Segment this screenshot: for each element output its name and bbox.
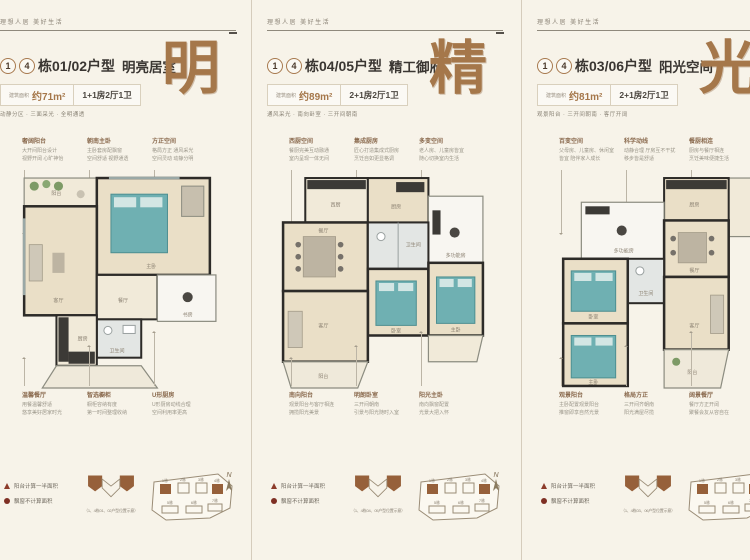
- keyplan-caption: （1、4栋04、05户型位置示意）: [345, 508, 411, 514]
- callout-bottom-3: U形厨房 U形厨房动线合理 空间利用率更高: [152, 390, 214, 417]
- callout-line: 空间舒适 视野通透: [87, 155, 149, 163]
- callout-line: U形厨房动线合理: [152, 401, 214, 409]
- leader-line: [89, 346, 90, 386]
- room-label: 卧室: [588, 313, 598, 320]
- legend-text: 飘窗不计算面积: [14, 497, 53, 505]
- chair-icon: [450, 227, 460, 237]
- legend: 阳台计算一半面积 飘窗不计算面积: [541, 482, 595, 512]
- callout-title: 阳光主卧: [419, 390, 481, 399]
- legend-row: 阳台计算一半面积 飘窗不计算面积 （1、4栋01、02户型位置示意）: [0, 468, 244, 543]
- callout-title: 奢阔阳台: [22, 136, 84, 145]
- unit-number-badge: 4: [556, 58, 572, 74]
- slogan-text: 理想人居 美好生活: [0, 17, 63, 26]
- layout-box: 2+1房2厅1卫: [341, 84, 407, 106]
- plant-icon: [42, 180, 50, 188]
- callout-bottom-1: 温馨餐厅 用餐温馨舒适 悠享美好居家时光: [22, 390, 84, 417]
- callout-line: 主卧套房配飘窗: [87, 147, 149, 155]
- callout-top-1: 西厨空间 餐厨完美互动融通 室内呈现一体无间: [289, 136, 351, 163]
- building-label: 6栋: [728, 499, 734, 505]
- toilet-icon: [636, 267, 644, 275]
- layout-box: 2+1房2厅1卫: [611, 84, 677, 106]
- callout-title: 智选橱柜: [87, 390, 149, 399]
- keyplan-caption: （1、4栋03、06户型位置示意）: [615, 508, 681, 514]
- layout-value: 1+1房2厅1卫: [82, 89, 131, 101]
- area-box: 建筑面积 约89m²: [267, 84, 341, 106]
- chair-icon: [295, 242, 301, 248]
- legend: 阳台计算一半面积 飘窗不计算面积: [271, 482, 325, 512]
- floor-plan-svg-2: 西厨 厨房 多功能房 餐厅 卫生间 客厅 卧室 主卧 阳台: [277, 174, 489, 391]
- rule-dash: [229, 32, 237, 34]
- toilet-icon: [377, 233, 385, 241]
- legend-text: 飘窗不计算面积: [551, 497, 590, 505]
- chair-icon: [338, 266, 344, 272]
- features-line: 通风采光 · 南向卧室 · 三开间朝南: [267, 110, 358, 118]
- callout-title: 集成厨房: [354, 136, 416, 145]
- legend-row: 阳台计算一半面积 飘窗不计算面积 （1、4栋04、05户型位置示意）: [259, 468, 511, 543]
- unit-number-badge: 4: [286, 58, 302, 74]
- callout-line: 空间利用率更高: [152, 409, 214, 417]
- room-label: 客厅: [318, 322, 328, 329]
- big-calligraphy-char: 明: [162, 40, 222, 98]
- compass-arrow-icon: [224, 479, 234, 493]
- building-1: [160, 484, 171, 494]
- callout-bottom-1: 南向阳台 观景阳台与客厅相连 拥揽阳光美景: [289, 390, 351, 417]
- pillow: [595, 338, 612, 346]
- room-label: 主卧: [146, 263, 156, 270]
- unit-number-badge: 1: [267, 58, 283, 74]
- chair-icon: [338, 242, 344, 248]
- callout-bottom-2: 智选橱柜 橱柜容纳有度 第一时间整理收纳: [87, 390, 149, 417]
- bay-window: [428, 335, 483, 361]
- leader-line: [421, 332, 422, 386]
- balcony: [664, 350, 729, 388]
- flyer-panel-2: 理想人居 美好生活 1 4 栋04/05户型 精工御府 精 建筑面积 约89m²…: [259, 0, 511, 560]
- leader-line: [561, 358, 562, 386]
- legend-balcony: 阳台计算一半面积: [4, 482, 58, 490]
- callout-title: 明朗卧室: [354, 390, 416, 399]
- pillow: [398, 283, 413, 291]
- plant-icon: [672, 358, 680, 366]
- features-line: 观景阳台 · 三开间朝南 · 客厅开阔: [537, 110, 628, 118]
- callout-line: 餐厨完美互动融通: [289, 147, 351, 155]
- building-label: 1栋: [699, 477, 705, 483]
- slogan-text: 理想人居 美好生活: [537, 17, 600, 26]
- building-outline: [102, 479, 120, 497]
- room-label: 主卧: [588, 379, 598, 386]
- callout-line: 烹饪美味便捷生活: [689, 155, 750, 163]
- building-label: 5栋: [434, 499, 440, 505]
- rule-dash: [496, 32, 504, 34]
- keyplan: （1、4栋04、05户型位置示意）: [345, 472, 411, 514]
- room-label: 厨房: [391, 203, 401, 210]
- callout-line: 烹饪自如更显格调: [354, 155, 416, 163]
- room-label: 客厅: [53, 297, 63, 304]
- callout-line: 随心切换室内生活: [419, 155, 481, 163]
- sofa: [711, 295, 724, 333]
- callout-top-3: 方正空间 格局方正 通风采光 空间灵动 动静分明: [152, 136, 214, 163]
- callout-title: 格局方正: [624, 390, 686, 399]
- sofa: [288, 311, 302, 347]
- counter: [666, 180, 727, 189]
- area-label: 建筑面积: [546, 92, 566, 99]
- highlighted-unit: [120, 476, 134, 492]
- chair-icon: [295, 266, 301, 272]
- callout-top-2: 科学动线 动静合理 厅房互不干扰 移步皆是舒适: [624, 136, 686, 163]
- callout-title: 科学动线: [624, 136, 686, 145]
- sink-icon: [123, 325, 135, 333]
- info-row: 建筑面积 约81m² 2+1房2厅1卫: [537, 84, 678, 106]
- plan-area: 西厨空间 餐厨完美互动融通 室内呈现一体无间 集成厨房 匠心打造集成式厨房 烹饪…: [259, 132, 511, 462]
- callout-top-1: 奢阔阳台 大开间阳台设计 视野开阔 心旷神怡: [22, 136, 84, 163]
- building-title: 栋01/02户型: [38, 56, 115, 76]
- leader-line: [291, 358, 292, 386]
- building-label: 2栋: [717, 476, 723, 482]
- building-label: 3栋: [465, 476, 471, 482]
- callout-line: 大开间阳台设计: [22, 147, 84, 155]
- area-label: 建筑面积: [276, 92, 296, 99]
- callout-bottom-2: 格局方正 三开间齐朝南 阳光满屋尽揽: [624, 390, 686, 417]
- top-rule: [537, 30, 750, 31]
- compass-n: N: [224, 472, 234, 479]
- circle-icon: [4, 498, 10, 504]
- area-value: 约89m²: [299, 88, 332, 103]
- room-label: 卫生间: [109, 348, 124, 355]
- callout-line: 用餐温馨舒适: [22, 401, 84, 409]
- chair-icon: [670, 250, 676, 256]
- panel-divider: [521, 0, 522, 560]
- building-1: [427, 484, 438, 494]
- building-label: 3栋: [735, 476, 741, 482]
- callout-line: 空间灵动 动静分明: [152, 155, 214, 163]
- legend-text: 飘窗不计算面积: [281, 497, 320, 505]
- slogan-text: 理想人居 美好生活: [267, 17, 330, 26]
- building-title: 栋03/06户型: [575, 56, 652, 76]
- pillow: [114, 197, 136, 207]
- dining: [97, 275, 158, 319]
- callout-line: 三开间齐朝南: [624, 401, 686, 409]
- area-value: 约71m²: [32, 88, 65, 103]
- room-label: 主卧: [451, 326, 461, 333]
- leader-line: [691, 332, 692, 386]
- legend-text: 阳台计算一半面积: [14, 482, 58, 490]
- callout-title: 朝南主卧: [87, 136, 149, 145]
- desk: [585, 206, 609, 214]
- dining-table: [678, 233, 706, 263]
- plan-area: 百变空间 父母房、儿童房、休闲室 皆宜 陪伴家人成长 科学动线 动静合理 厅房互…: [529, 132, 750, 462]
- building-label: 7栋: [479, 497, 485, 503]
- bottom-balcony: [42, 366, 157, 388]
- table-icon: [77, 190, 85, 198]
- callout-line: 动静合理 厅房互不干扰: [624, 147, 686, 155]
- room-label: 阳台: [51, 190, 61, 197]
- callout-title: 观景阳台: [559, 390, 621, 399]
- floor-plan-svg-1: 阳台 主卧 客厅 餐厅 书房 卫生间 厨房: [10, 174, 222, 391]
- callout-line: 橱柜容纳有度: [87, 401, 149, 409]
- counter: [58, 317, 68, 361]
- room-label: 餐厅: [689, 267, 699, 274]
- info-row: 建筑面积 约89m² 2+1房2厅1卫: [267, 84, 408, 106]
- pillow: [595, 273, 612, 281]
- callout-line: 三开间朝南: [354, 401, 416, 409]
- callout-title: 阔景餐厅: [689, 390, 750, 399]
- service-balcony: [729, 178, 750, 237]
- building-label: 6栋: [458, 499, 464, 505]
- keyplan-svg: [346, 472, 410, 502]
- flyer-panel-1: 理想人居 美好生活 1 4 栋01/02户型 明亮居室 明 建筑面积 约71m²…: [0, 0, 244, 560]
- highlighted-unit: [355, 476, 369, 492]
- building-outline: [369, 479, 387, 497]
- wardrobe: [182, 186, 204, 216]
- callout-line: 主卧配置观景阳台: [559, 401, 621, 409]
- legend-balcony: 阳台计算一半面积: [541, 482, 595, 490]
- panel-divider: [251, 0, 252, 560]
- callout-line: 推窗即享自然光景: [559, 409, 621, 417]
- desk: [432, 210, 440, 234]
- top-rule: [267, 30, 503, 31]
- chair-icon: [295, 254, 301, 260]
- callout-line: 老人房、儿童房皆宜: [419, 147, 481, 155]
- compass: N: [491, 472, 501, 498]
- legend-text: 阳台计算一半面积: [551, 482, 595, 490]
- building-1: [697, 484, 708, 494]
- pillow: [440, 279, 454, 287]
- room-label: 卫生间: [638, 290, 653, 297]
- highlighted-unit: [88, 476, 102, 492]
- building-label: 5栋: [704, 499, 710, 505]
- area-value: 约81m²: [569, 88, 602, 103]
- toilet-icon: [104, 326, 112, 334]
- appliance: [396, 182, 424, 192]
- room-label: 卫生间: [406, 242, 421, 249]
- callout-line: 格局方正 通风采光: [152, 147, 214, 155]
- chair-icon: [709, 250, 715, 256]
- compass-n: N: [491, 472, 501, 479]
- callout-line: 光景大把入怀: [419, 409, 481, 417]
- callout-line: 南向飘窗配置: [419, 401, 481, 409]
- legend-baywindow: 飘窗不计算面积: [271, 497, 325, 505]
- compass: N: [224, 472, 234, 498]
- big-calligraphy-char: 光: [699, 40, 750, 98]
- building-label: 6栋: [191, 499, 197, 505]
- plant-icon: [30, 182, 39, 191]
- building-label: 4栋: [481, 477, 487, 483]
- plant-icon: [54, 182, 63, 191]
- compass-arrow-icon: [491, 479, 501, 493]
- callout-top-3: 多变空间 老人房、儿童房皆宜 随心切换室内生活: [419, 136, 481, 163]
- circle-icon: [271, 498, 277, 504]
- pillow: [140, 197, 162, 207]
- leader-line: [24, 358, 25, 386]
- pillow: [458, 279, 472, 287]
- chair-icon: [183, 292, 193, 302]
- keyplan-svg: [79, 472, 143, 502]
- room-label: 厨房: [689, 201, 699, 208]
- callout-top-3: 餐厨相连 厨房与餐厅相连 烹饪美味便捷生活: [689, 136, 750, 163]
- dining-table: [303, 237, 335, 277]
- room-label: 多功能房: [614, 248, 634, 255]
- building-label: 4栋: [214, 477, 220, 483]
- area-box: 建筑面积 约71m²: [0, 84, 74, 106]
- building-label: 2栋: [180, 476, 186, 482]
- callout-line: 阳光满屋尽揽: [624, 409, 686, 417]
- leader-line: [626, 346, 627, 386]
- callout-title: 南向阳台: [289, 390, 351, 399]
- building-label: 7栋: [212, 497, 218, 503]
- callout-title: 西厨空间: [289, 136, 351, 145]
- flyer-panel-3: 理想人居 美好生活 1 4 栋03/06户型 阳光空间 光 建筑面积 约81m²…: [529, 0, 750, 560]
- unit-title: 1 4 栋01/02户型 明亮居室: [0, 56, 176, 76]
- callout-bottom-2: 明朗卧室 三开间朝南 引景与阳光随时入室: [354, 390, 416, 417]
- callout-title: 餐厨相连: [689, 136, 750, 145]
- legend-text: 阳台计算一半面积: [281, 482, 325, 490]
- area-box: 建筑面积 约81m²: [537, 84, 611, 106]
- features-line: 动静分区 · 三面采光 · 全明通透: [0, 110, 85, 118]
- callout-line: 第一时间整理收纳: [87, 409, 149, 417]
- callout-bottom-3: 阔景餐厅 餐厅方正开阔 聚餐会友从容自在: [689, 390, 750, 417]
- big-calligraphy-char: 精: [429, 40, 489, 98]
- unit-number-badge: 4: [19, 58, 35, 74]
- layout-box: 1+1房2厅1卫: [74, 84, 140, 106]
- keyplan: （1、4栋03、06户型位置示意）: [615, 472, 681, 514]
- callout-top-2: 朝南主卧 主卧套房配飘窗 空间舒适 视野通透: [87, 136, 149, 163]
- room-label: 阳台: [687, 369, 697, 376]
- callout-line: 悠享美好居家时光: [22, 409, 84, 417]
- highlighted-unit: [625, 476, 639, 492]
- pillow: [379, 283, 394, 291]
- unit-title: 1 4 栋04/05户型 精工御府: [267, 56, 443, 76]
- floor-plan-svg-3: 厨房 多功能房 餐厅 卫生间 卧室 客厅 主卧 阳台: [547, 174, 750, 391]
- room-label: 卧室: [391, 327, 401, 334]
- callout-line: 观景阳台与客厅相连: [289, 401, 351, 409]
- pillow: [574, 273, 591, 281]
- building-label: 3栋: [198, 476, 204, 482]
- callout-title: 方正空间: [152, 136, 214, 145]
- triangle-icon: [271, 483, 277, 489]
- leader-line: [356, 346, 357, 386]
- counter: [307, 180, 366, 189]
- legend-balcony: 阳台计算一半面积: [271, 482, 325, 490]
- callout-title: U形厨房: [152, 390, 214, 399]
- room-label: 厨房: [78, 336, 88, 343]
- room-label: 阳台: [318, 373, 328, 380]
- legend-baywindow: 飘窗不计算面积: [4, 497, 58, 505]
- callout-top-1: 百变空间 父母房、儿童房、休闲室 皆宜 陪伴家人成长: [559, 136, 621, 163]
- callout-line: 皆宜 陪伴家人成长: [559, 155, 621, 163]
- callout-line: 室内呈现一体无间: [289, 155, 351, 163]
- room-label: 书房: [183, 311, 193, 318]
- callout-title: 百变空间: [559, 136, 621, 145]
- callout-line: 移步皆是舒适: [624, 155, 686, 163]
- legend: 阳台计算一半面积 飘窗不计算面积: [4, 482, 58, 512]
- unit-number-badge: 1: [537, 58, 553, 74]
- building-label: 5栋: [167, 499, 173, 505]
- layout-value: 2+1房2厅1卫: [349, 89, 398, 101]
- legend-baywindow: 飘窗不计算面积: [541, 497, 595, 505]
- callout-bottom-3: 阳光主卧 南向飘窗配置 光景大把入怀: [419, 390, 481, 417]
- callout-title: 多变空间: [419, 136, 481, 145]
- building-4: [479, 484, 490, 494]
- keyplan-caption: （1、4栋01、02户型位置示意）: [78, 508, 144, 514]
- callout-line: 拥揽阳光美景: [289, 409, 351, 417]
- layout-value: 2+1房2厅1卫: [619, 89, 668, 101]
- coffee-table: [52, 253, 64, 273]
- leader-line: [154, 332, 155, 386]
- room-label: 餐厅: [118, 297, 128, 304]
- building-label: 2栋: [447, 476, 453, 482]
- callout-line: 匠心打造集成式厨房: [354, 147, 416, 155]
- triangle-icon: [541, 483, 547, 489]
- info-row: 建筑面积 约71m² 1+1房2厅1卫: [0, 84, 141, 106]
- building-outline: [639, 479, 657, 497]
- pillow: [574, 338, 591, 346]
- callout-title: 温馨餐厅: [22, 390, 84, 399]
- callout-line: 引景与阳光随时入室: [354, 409, 416, 417]
- keyplan: （1、4栋01、02户型位置示意）: [78, 472, 144, 514]
- callout-line: 厨房与餐厅相连: [689, 147, 750, 155]
- callout-line: 餐厅方正开阔: [689, 401, 750, 409]
- triangle-icon: [4, 483, 10, 489]
- building-label: 1栋: [162, 477, 168, 483]
- room-label: 多功能房: [446, 252, 466, 259]
- legend-row: 阳台计算一半面积 飘窗不计算面积 （1、4栋03、06户型位置示意）: [529, 468, 750, 543]
- chair-icon: [670, 236, 676, 242]
- building-title: 栋04/05户型: [305, 56, 382, 76]
- highlighted-unit: [657, 476, 671, 492]
- callout-top-2: 集成厨房 匠心打造集成式厨房 烹饪自如更显格调: [354, 136, 416, 163]
- callout-bottom-1: 观景阳台 主卧配置观景阳台 推窗即享自然光景: [559, 390, 621, 417]
- chair-icon: [617, 225, 627, 235]
- circle-icon: [541, 498, 547, 504]
- siteplan-svg: 1栋 2栋 3栋 4栋 5栋 6栋 7栋: [685, 470, 750, 524]
- plan-area: 奢阔阳台 大开间阳台设计 视野开阔 心旷神怡 朝南主卧 主卧套房配飘窗 空间舒适…: [0, 132, 244, 462]
- callout-line: 聚餐会友从容自在: [689, 409, 750, 417]
- callout-line: 父母房、儿童房、休闲室: [559, 147, 621, 155]
- chair-icon: [709, 236, 715, 242]
- room-label: 餐厅: [318, 228, 328, 235]
- flyer-page: 理想人居 美好生活 1 4 栋01/02户型 明亮居室 明 建筑面积 约71m²…: [0, 0, 750, 560]
- building-label: 1栋: [429, 477, 435, 483]
- building-4: [212, 484, 223, 494]
- unit-number-badge: 1: [0, 58, 16, 74]
- top-rule: [0, 30, 236, 31]
- unit-title: 1 4 栋03/06户型 阳光空间: [537, 56, 713, 76]
- room-label: 西厨: [331, 202, 341, 208]
- callout-line: 视野开阔 心旷神怡: [22, 155, 84, 163]
- keyplan-svg: [616, 472, 680, 502]
- counter: [69, 352, 95, 364]
- chair-icon: [338, 254, 344, 260]
- highlighted-unit: [387, 476, 401, 492]
- sofa: [29, 245, 42, 281]
- area-label: 建筑面积: [9, 92, 29, 99]
